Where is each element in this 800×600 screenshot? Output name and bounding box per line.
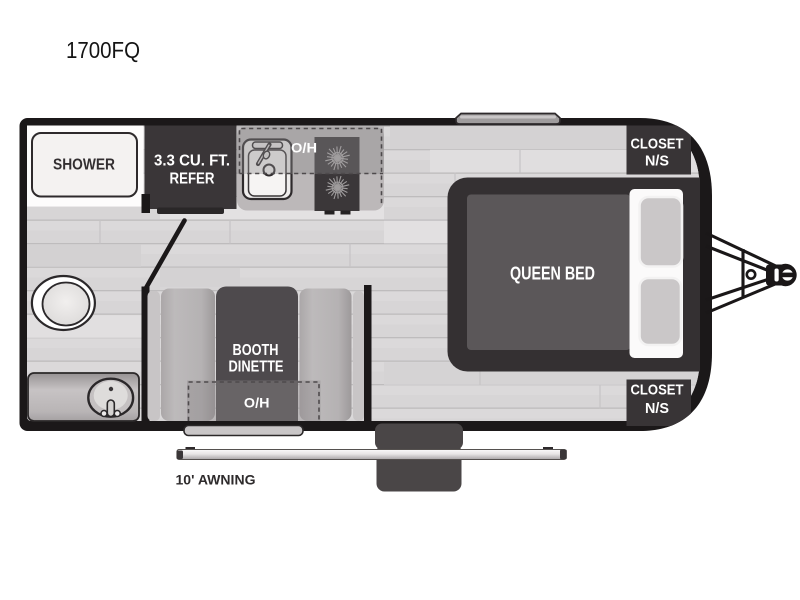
svg-text:CLOSET: CLOSET <box>631 136 684 153</box>
svg-text:O/H: O/H <box>244 395 270 411</box>
svg-text:N/S: N/S <box>645 400 669 417</box>
svg-text:QUEEN BED: QUEEN BED <box>510 264 595 284</box>
svg-text:3.3 CU. FT.: 3.3 CU. FT. <box>154 153 230 170</box>
svg-text:REFER: REFER <box>170 171 215 188</box>
svg-text:O/H: O/H <box>291 140 317 156</box>
svg-text:BOOTH: BOOTH <box>233 342 279 359</box>
svg-text:1700FQ: 1700FQ <box>66 37 140 63</box>
svg-text:SHOWER: SHOWER <box>53 157 115 174</box>
svg-text:N/S: N/S <box>645 152 669 169</box>
svg-text:CLOSET: CLOSET <box>631 382 684 399</box>
svg-text:10' AWNING: 10' AWNING <box>176 472 256 487</box>
svg-text:DINETTE: DINETTE <box>229 359 284 376</box>
